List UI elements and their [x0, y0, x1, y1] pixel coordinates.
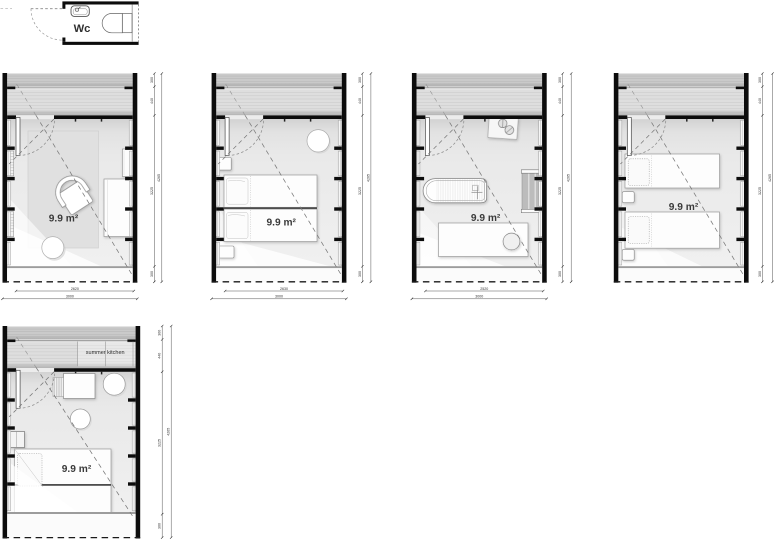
svg-text:440: 440: [158, 353, 162, 359]
svg-text:2620: 2620: [71, 287, 79, 291]
svg-text:4265: 4265: [768, 174, 772, 182]
svg-text:Wc: Wc: [74, 23, 91, 35]
svg-text:440: 440: [150, 98, 154, 104]
svg-text:4265: 4265: [167, 428, 171, 436]
svg-text:300: 300: [158, 523, 162, 529]
svg-text:2520: 2520: [480, 287, 488, 291]
svg-text:9.9 m²: 9.9 m²: [49, 213, 79, 224]
svg-text:300: 300: [150, 271, 154, 277]
svg-text:9.9 m²: 9.9 m²: [266, 217, 296, 228]
svg-text:3225: 3225: [758, 187, 762, 195]
svg-text:440: 440: [358, 98, 362, 104]
svg-text:3000: 3000: [475, 295, 483, 299]
svg-text:300: 300: [758, 77, 762, 83]
svg-text:440: 440: [758, 98, 762, 104]
svg-text:300: 300: [358, 77, 362, 83]
svg-text:9.9 m²: 9.9 m²: [669, 202, 699, 213]
svg-text:3000: 3000: [66, 295, 74, 299]
svg-text:4265: 4265: [567, 174, 571, 182]
svg-text:300: 300: [158, 330, 162, 336]
svg-text:4265: 4265: [157, 174, 161, 182]
svg-text:9.9 m²: 9.9 m²: [471, 213, 501, 224]
svg-text:300: 300: [150, 77, 154, 83]
svg-text:300: 300: [558, 77, 562, 83]
svg-text:300: 300: [758, 271, 762, 277]
svg-text:2630: 2630: [280, 287, 288, 291]
svg-text:9.9 m²: 9.9 m²: [62, 464, 92, 475]
svg-text:300: 300: [558, 271, 562, 277]
svg-text:3225: 3225: [158, 439, 162, 447]
svg-text:300: 300: [358, 271, 362, 277]
svg-text:3225: 3225: [150, 187, 154, 195]
svg-text:3225: 3225: [558, 187, 562, 195]
svg-text:440: 440: [558, 98, 562, 104]
svg-text:summer kitchen: summer kitchen: [86, 350, 125, 356]
svg-text:3000: 3000: [275, 295, 283, 299]
svg-text:3225: 3225: [358, 187, 362, 195]
svg-text:4265: 4265: [366, 174, 370, 182]
